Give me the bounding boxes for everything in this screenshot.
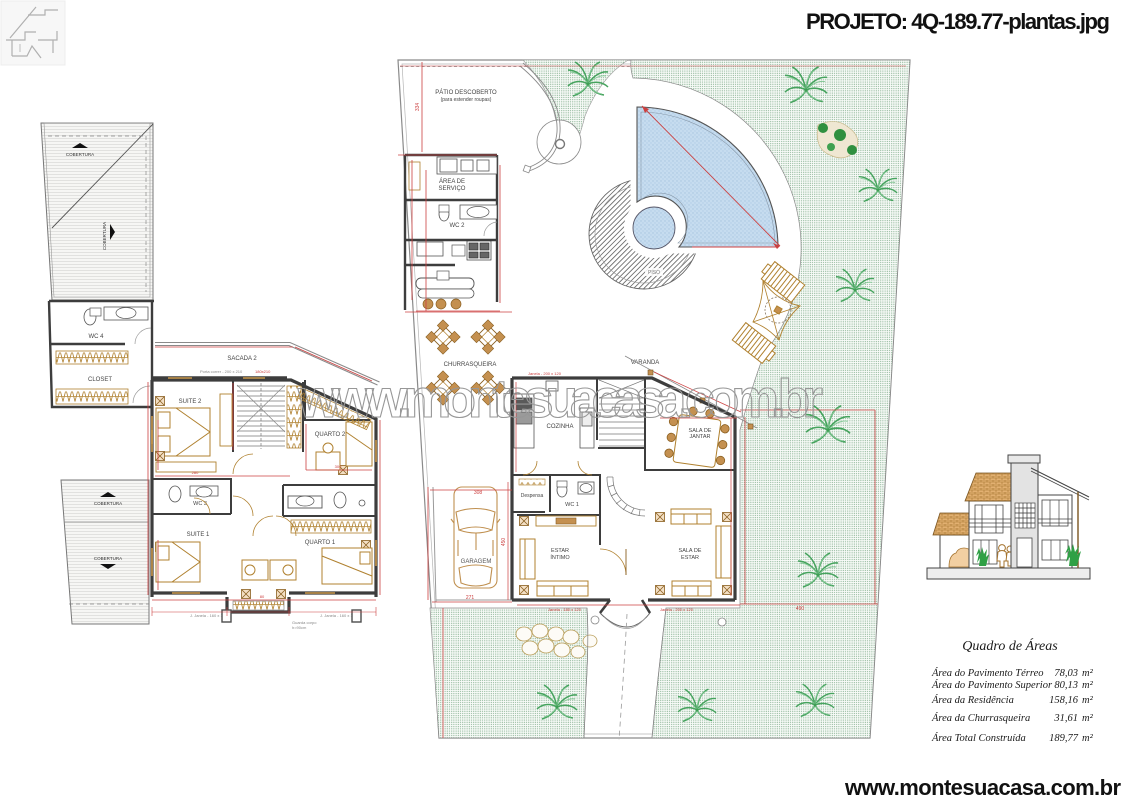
svg-text:Janela - 180 x 120: Janela - 180 x 120 xyxy=(548,607,582,612)
svg-text:180x210: 180x210 xyxy=(255,369,271,374)
svg-text:80,13: 80,13 xyxy=(1054,680,1078,691)
svg-text:PÁTIO DESCOBERTO: PÁTIO DESCOBERTO xyxy=(435,89,497,96)
svg-text:WC 1: WC 1 xyxy=(565,502,579,508)
svg-text:Área da Churrasqueira: Área da Churrasqueira xyxy=(931,712,1030,724)
svg-text:JANTAR: JANTAR xyxy=(690,434,711,440)
svg-text:490: 490 xyxy=(796,606,805,612)
svg-text:PROJETO: 4Q-189.77-plantas.jpg: PROJETO: 4Q-189.77-plantas.jpg xyxy=(806,9,1110,34)
svg-text:ÁREA DE: ÁREA DE xyxy=(439,178,465,185)
svg-text:78,03: 78,03 xyxy=(1054,668,1078,679)
svg-text:ESTAR: ESTAR xyxy=(551,548,569,554)
svg-text:Despensa: Despensa xyxy=(521,493,544,499)
svg-text:158,16: 158,16 xyxy=(1049,695,1079,706)
svg-text:COBERTURA: COBERTURA xyxy=(102,222,107,250)
svg-text:VARANDA: VARANDA xyxy=(631,360,660,366)
svg-text:280: 280 xyxy=(192,470,199,475)
svg-text:Quadro de Áreas: Quadro de Áreas xyxy=(962,637,1058,654)
svg-text:SUITE 1: SUITE 1 xyxy=(187,532,210,538)
svg-text:COBERTURA: COBERTURA xyxy=(94,556,122,561)
svg-text:(para estender roupas): (para estender roupas) xyxy=(441,97,492,103)
svg-text:334: 334 xyxy=(415,103,421,112)
svg-text:CLOSET: CLOSET xyxy=(88,377,112,383)
svg-text:SALA DE: SALA DE xyxy=(679,548,702,554)
svg-text:Área Total Construída: Área Total Construída xyxy=(931,732,1026,744)
svg-text:WC 4: WC 4 xyxy=(89,334,105,340)
svg-text:QUARTO 1: QUARTO 1 xyxy=(305,540,336,546)
svg-text:SERVIÇO: SERVIÇO xyxy=(439,186,466,192)
svg-text:COBERTURA: COBERTURA xyxy=(94,501,122,506)
svg-text:m²: m² xyxy=(1082,713,1094,724)
svg-text:CHURRASQUEIRA: CHURRASQUEIRA xyxy=(444,362,497,368)
svg-text:ÍNTIMO: ÍNTIMO xyxy=(550,554,570,561)
svg-text:Janela - 200 x 120: Janela - 200 x 120 xyxy=(660,607,694,612)
svg-text:Área do Pavimento Térreo: Área do Pavimento Térreo xyxy=(931,667,1044,679)
svg-text:h=90cm: h=90cm xyxy=(292,625,307,630)
svg-text:Área da Residência: Área da Residência xyxy=(931,694,1014,706)
svg-text:SACADA 2: SACADA 2 xyxy=(227,356,257,362)
svg-text:www.montesuacasa.com.br: www.montesuacasa.com.br xyxy=(844,775,1121,800)
svg-text:GARAGEM: GARAGEM xyxy=(461,559,492,565)
svg-text:m²: m² xyxy=(1082,680,1094,691)
svg-text:Área do Pavimento Superior: Área do Pavimento Superior xyxy=(931,679,1053,691)
svg-text:SUITE 2: SUITE 2 xyxy=(179,399,202,405)
svg-text:Porta correr - 200 x 210: Porta correr - 200 x 210 xyxy=(200,369,243,374)
svg-text:ESTAR: ESTAR xyxy=(681,555,699,561)
svg-text:189,77: 189,77 xyxy=(1049,733,1079,744)
svg-text:300: 300 xyxy=(335,464,342,469)
svg-text:80: 80 xyxy=(260,594,265,599)
svg-text:COBERTURA: COBERTURA xyxy=(66,152,94,157)
svg-text:WC 2: WC 2 xyxy=(450,223,466,229)
svg-text:31,61: 31,61 xyxy=(1053,713,1078,724)
svg-text:m²: m² xyxy=(1082,733,1094,744)
svg-text:m²: m² xyxy=(1082,695,1094,706)
svg-text:QUARTO 2: QUARTO 2 xyxy=(315,432,346,438)
svg-text:PISO: PISO xyxy=(648,270,660,276)
svg-text:450: 450 xyxy=(501,538,507,547)
svg-text:m²: m² xyxy=(1082,668,1094,679)
svg-text:271: 271 xyxy=(466,595,475,601)
svg-text:308: 308 xyxy=(474,490,483,496)
svg-text:www.montesuacasa.com.br: www.montesuacasa.com.br xyxy=(297,369,823,429)
